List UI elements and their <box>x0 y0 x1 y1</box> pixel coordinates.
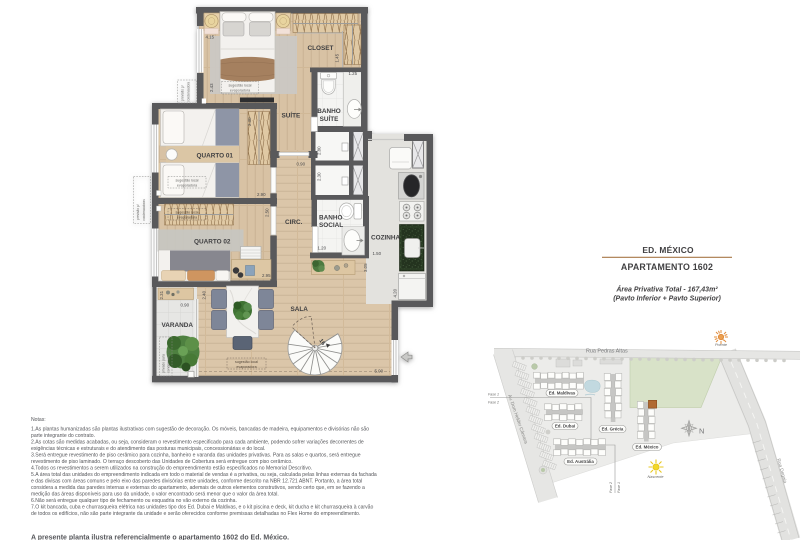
svg-text:Ed. México: Ed. México <box>636 445 659 450</box>
svg-text:QUARTO 01: QUARTO 01 <box>197 153 234 160</box>
svg-text:exigências técnicas e estrutur: exigências técnicas e estruturais e do a… <box>31 446 265 452</box>
svg-text:ED. MÉXICO: ED. MÉXICO <box>642 244 694 255</box>
svg-text:sugestão local: sugestão local <box>235 360 258 364</box>
svg-text:SALA: SALA <box>291 306 309 313</box>
svg-text:2.40: 2.40 <box>202 290 207 299</box>
svg-text:2.43: 2.43 <box>209 83 214 92</box>
svg-text:revestimento de piso laminado.: revestimento de piso laminado. O terraço… <box>31 459 293 465</box>
svg-text:2.50: 2.50 <box>265 208 270 217</box>
svg-text:2.As cotas são medidas acabada: 2.As cotas são medidas acabadas, ou seja… <box>31 440 364 446</box>
svg-text:0.90: 0.90 <box>297 162 306 167</box>
svg-text:3.Será entregue revestimento d: 3.Será entregue revestimento de piso cer… <box>31 453 361 459</box>
svg-text:4.Todos os revestimentos a ser: 4.Todos os revestimentos a serem utiliza… <box>31 466 312 472</box>
svg-text:sugestão local: sugestão local <box>176 211 199 215</box>
svg-text:Ed. Austrália: Ed. Austrália <box>567 459 594 464</box>
svg-text:BANHO: BANHO <box>317 108 340 115</box>
svg-text:considera a medida das paredes: considera a medida das paredes internas … <box>31 485 365 491</box>
svg-text:1.As plantas humanizadas são p: 1.As plantas humanizadas são plantas ilu… <box>31 427 369 433</box>
svg-text:2.31: 2.31 <box>159 290 164 299</box>
svg-text:5.A área total das unidades do: 5.A área total das unidades do empreendi… <box>31 472 377 478</box>
svg-text:sugestão local: sugestão local <box>176 179 199 183</box>
svg-text:2.80: 2.80 <box>317 146 322 155</box>
svg-text:VARANDA: VARANDA <box>162 322 194 329</box>
svg-text:previsão p/: previsão p/ <box>136 204 140 220</box>
svg-text:SUÍTE: SUÍTE <box>282 111 302 120</box>
svg-text:condensadoras: condensadoras <box>167 350 171 373</box>
svg-text:COZINHA: COZINHA <box>371 235 400 242</box>
svg-text:condensadora: condensadora <box>187 82 191 102</box>
svg-text:CIRC.: CIRC. <box>285 219 303 226</box>
svg-text:Fase 1: Fase 1 <box>617 482 621 493</box>
svg-text:4.15: 4.15 <box>206 35 215 40</box>
svg-text:1.25: 1.25 <box>349 71 358 76</box>
svg-text:Área Privativa Total - 167,43m: Área Privativa Total - 167,43m² <box>615 285 718 294</box>
svg-text:privado para: privado para <box>162 354 166 373</box>
svg-text:3.05: 3.05 <box>363 263 368 272</box>
svg-text:Ed. Grécia: Ed. Grécia <box>602 427 624 432</box>
svg-text:medição das áreas disponíveis: medição das áreas disponíveis para uso d… <box>31 492 279 498</box>
svg-text:Fase 2: Fase 2 <box>609 482 613 493</box>
svg-text:1.45: 1.45 <box>335 53 340 62</box>
svg-text:(Pavto Inferior + Pavto Superi: (Pavto Inferior + Pavto Superior) <box>613 296 721 303</box>
svg-text:sugestão local: sugestão local <box>229 84 252 88</box>
svg-text:Nascente: Nascente <box>647 475 663 479</box>
svg-text:Rua Pedras Altas: Rua Pedras Altas <box>586 349 628 355</box>
svg-text:2.30: 2.30 <box>247 117 252 126</box>
svg-text:e das divisas com áreas comuns: e das divisas com áreas comuns e pelo ei… <box>31 479 362 485</box>
svg-text:BANHO: BANHO <box>319 215 342 222</box>
svg-text:Fase 1: Fase 1 <box>488 393 499 397</box>
svg-text:SUÍTE: SUÍTE <box>320 114 340 123</box>
svg-text:evaporadora: evaporadora <box>230 89 250 93</box>
svg-text:Fase 2: Fase 2 <box>488 401 499 405</box>
svg-text:evaporadora: evaporadora <box>236 365 256 369</box>
svg-text:APARTAMENTO 1602: APARTAMENTO 1602 <box>621 262 713 272</box>
svg-text:0.90: 0.90 <box>181 303 190 308</box>
svg-text:4.20: 4.20 <box>393 288 398 297</box>
svg-text:1.20: 1.20 <box>318 246 327 251</box>
svg-text:de todos os edifícios, não são: de todos os edifícios, não são parte int… <box>31 511 360 517</box>
svg-text:6.Não será entregue qualquer t: 6.Não será entregue qualquer tipo de fec… <box>31 498 237 504</box>
svg-text:CLOSET: CLOSET <box>308 45 334 52</box>
svg-text:2.30: 2.30 <box>317 172 322 181</box>
svg-text:2.95: 2.95 <box>262 273 271 278</box>
svg-text:7.O kit bancada, cuba e churra: 7.O kit bancada, cuba e churrasqueira el… <box>31 505 373 511</box>
svg-text:evaporadora: evaporadora <box>177 183 197 187</box>
svg-text:1.50: 1.50 <box>373 251 382 256</box>
svg-text:Notas:: Notas: <box>31 417 46 423</box>
svg-text:5.00: 5.00 <box>375 369 384 374</box>
svg-text:2.90: 2.90 <box>257 192 266 197</box>
svg-text:SOCIAL: SOCIAL <box>319 222 343 229</box>
svg-text:A presente planta ilustra refe: A presente planta ilustra referencialmen… <box>31 535 289 540</box>
svg-text:N: N <box>699 427 704 436</box>
svg-text:parte integrante do contrato.: parte integrante do contrato. <box>31 433 95 439</box>
svg-text:previsão p/: previsão p/ <box>181 85 185 101</box>
svg-text:Ed. Dubai: Ed. Dubai <box>555 424 575 429</box>
svg-text:evaporadora: evaporadora <box>177 215 197 219</box>
svg-text:Ed. Maldivas: Ed. Maldivas <box>549 391 576 396</box>
svg-text:condensadoras: condensadoras <box>142 199 146 221</box>
svg-text:QUARTO 02: QUARTO 02 <box>194 239 231 246</box>
svg-text:Poente: Poente <box>715 343 727 347</box>
